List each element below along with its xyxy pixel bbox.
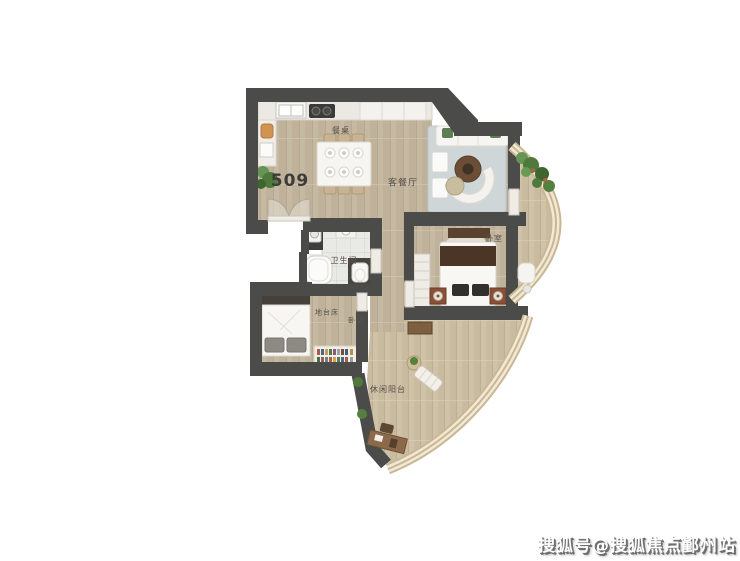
tv-board: [448, 228, 490, 238]
small-round-table: [446, 177, 464, 195]
balcony-side-table: [523, 285, 531, 293]
toilet: [352, 263, 368, 282]
side-table: [432, 178, 448, 198]
wall: [370, 272, 382, 296]
balcony-door: [509, 189, 519, 215]
sofa-pillow: [442, 128, 453, 138]
wall: [404, 306, 528, 320]
unit-number: 509: [271, 171, 310, 191]
wall: [370, 218, 382, 250]
label-living-dining: 客餐厅: [388, 180, 418, 189]
floor-plan-svg: [0, 0, 740, 561]
label-bathroom: 卫生间: [331, 257, 358, 265]
label-second-bedroom: 卧室: [348, 318, 364, 325]
side-table: [432, 152, 448, 172]
plant-icon: [353, 377, 363, 387]
wall: [454, 122, 522, 136]
floor-plan-image: 餐桌 客餐厅 卫生间 卧室 地台床 卧室 休闲阳台 509 搜狐号@搜狐焦点鄞州…: [0, 0, 740, 561]
small-appliance: [260, 143, 273, 157]
wall: [250, 362, 362, 376]
bathroom-door: [371, 249, 381, 273]
label-master-bedroom: 卧室: [485, 235, 503, 243]
wall: [250, 282, 262, 376]
coffee-table-tray: [463, 164, 474, 175]
burner-icon: [323, 107, 331, 115]
flower-icon: [531, 168, 535, 172]
label-platform-bed: 地台床: [315, 310, 339, 317]
wall: [301, 230, 309, 254]
flower-icon: [543, 178, 547, 182]
living-lounge: [428, 126, 508, 225]
bed-throw: [440, 246, 496, 266]
wall: [404, 212, 526, 226]
burner-icon: [312, 107, 320, 115]
plant-icon: [532, 178, 542, 188]
entry-door-leaf: [268, 216, 310, 221]
kitchen-cabinet: [360, 102, 426, 120]
watermark-text: 搜狐号@搜狐焦点鄞州站: [538, 531, 736, 556]
label-dining-table: 餐桌: [332, 127, 350, 135]
plant-icon: [521, 167, 531, 177]
bed-pillow: [452, 284, 469, 296]
plant-icon: [357, 409, 367, 419]
cutting-board: [261, 124, 273, 138]
second-bedroom-door: [357, 293, 367, 311]
wall: [246, 220, 268, 234]
wall: [246, 88, 258, 234]
dining-set: [317, 134, 371, 194]
balcony-bench: [408, 322, 432, 334]
wall: [404, 226, 414, 282]
label-leisure-balcony: 休闲阳台: [370, 386, 406, 394]
wall: [246, 88, 432, 102]
plant-icon: [410, 357, 418, 365]
master-bedroom-door: [405, 281, 414, 307]
bed-pillow: [472, 284, 489, 296]
balcony-chair: [518, 263, 535, 283]
bed-pillow: [265, 338, 284, 352]
bed-pillow: [287, 338, 306, 352]
